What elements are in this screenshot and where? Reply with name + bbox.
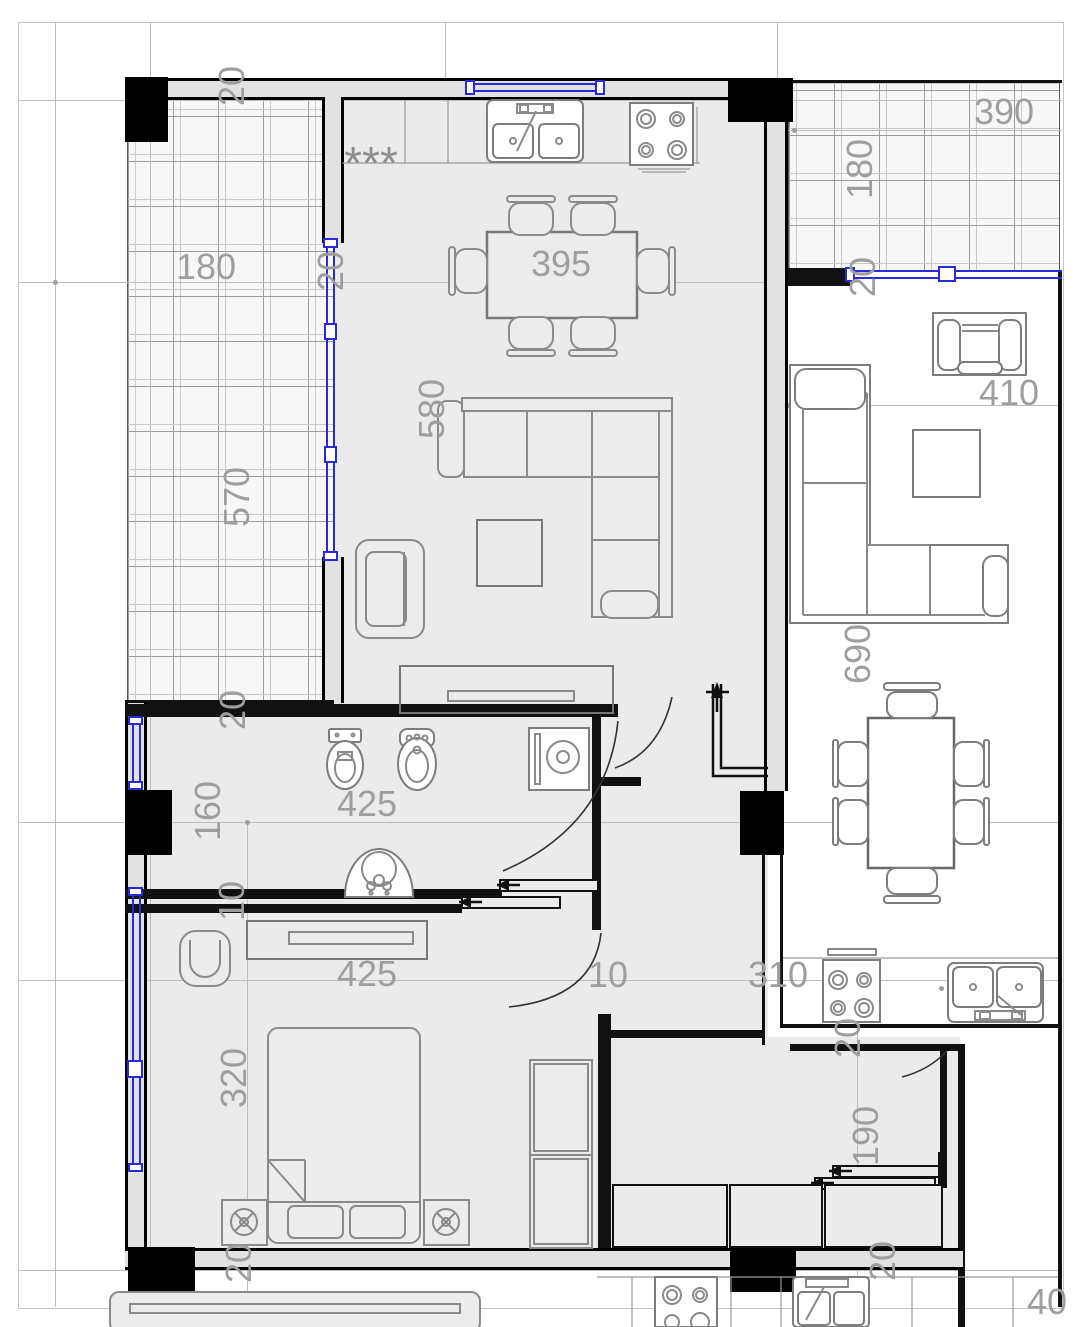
dim-corner-partial: 40: [1027, 1284, 1067, 1320]
dim-balcony-left-width: 180: [176, 249, 236, 285]
tv-console: [400, 666, 613, 713]
dim-balcony-left-wall: 20: [313, 251, 349, 291]
dim-sofa-width: 580: [414, 379, 450, 439]
furniture-layer: [0, 0, 1073, 1327]
dim-bottom-wall-left: 20: [221, 1243, 257, 1283]
dim-hall-gap: 10: [588, 957, 628, 993]
nightstand-left: [222, 1200, 267, 1245]
bidet-icon: [398, 729, 436, 790]
fridge-marker-icon: ***: [344, 140, 398, 186]
toilet-icon: [327, 729, 363, 789]
dim-corridor-wall-top: 20: [830, 1018, 866, 1058]
dim-corridor-width: 190: [848, 1106, 884, 1166]
washbasin-icon: [345, 849, 413, 897]
armchair-right-unit: [933, 313, 1026, 375]
washing-machine-icon: [529, 728, 589, 790]
entry-pocket-door-icon: [706, 682, 768, 776]
dim-bath-wall: 20: [215, 690, 251, 730]
kitchen-sink-icon: [487, 100, 583, 162]
wardrobe: [530, 1060, 592, 1248]
dim-balcony-left-depth: 570: [219, 467, 255, 527]
dim-kitchen-right-width: 310: [748, 957, 808, 993]
sink-right-icon: [948, 963, 1043, 1022]
sofa-left: [438, 398, 672, 618]
stove-icon: [630, 103, 693, 172]
stove-right-icon: [823, 949, 880, 1022]
dim-balcony-right-depth: 180: [842, 139, 878, 199]
dim-bath-width: 425: [337, 786, 397, 822]
dim-balcony-right-width: 390: [974, 94, 1034, 130]
dim-bedroom-width: 425: [337, 956, 397, 992]
entry-door-arc: [615, 697, 672, 768]
coffee-table-left: [477, 520, 542, 586]
corridor-door-arc: [902, 1051, 947, 1077]
dim-bath-depth: 160: [190, 781, 226, 841]
dim-balcony-right-wall: 20: [845, 257, 881, 297]
armchair-left: [356, 540, 424, 638]
dim-bedroom-depth: 320: [216, 1048, 252, 1108]
dim-living-right-depth: 690: [840, 624, 876, 684]
sliding-door-bath: [459, 879, 598, 908]
desk-chair-icon: [180, 931, 230, 986]
bed-left: [268, 1028, 420, 1243]
dining-table-right: [833, 683, 989, 903]
dim-living-right-width: 410: [979, 375, 1039, 411]
closet-row: [613, 1185, 942, 1247]
dim-top-wall: 20: [214, 66, 250, 106]
coffee-table-right: [913, 430, 980, 497]
dim-corridor-wall-bottom: 20: [865, 1241, 901, 1281]
nightstand-right: [424, 1200, 469, 1245]
lower-unit-bed: [110, 1292, 480, 1327]
dim-partition-gap: 10: [214, 881, 250, 921]
dim-dining-width: 395: [531, 246, 591, 282]
lower-unit-stove-icon: [655, 1277, 717, 1327]
lower-unit-sink-icon: [793, 1277, 869, 1327]
floor-plan-canvas: 20 180 20 395 570 580 390 180 20 410 690…: [0, 0, 1073, 1327]
